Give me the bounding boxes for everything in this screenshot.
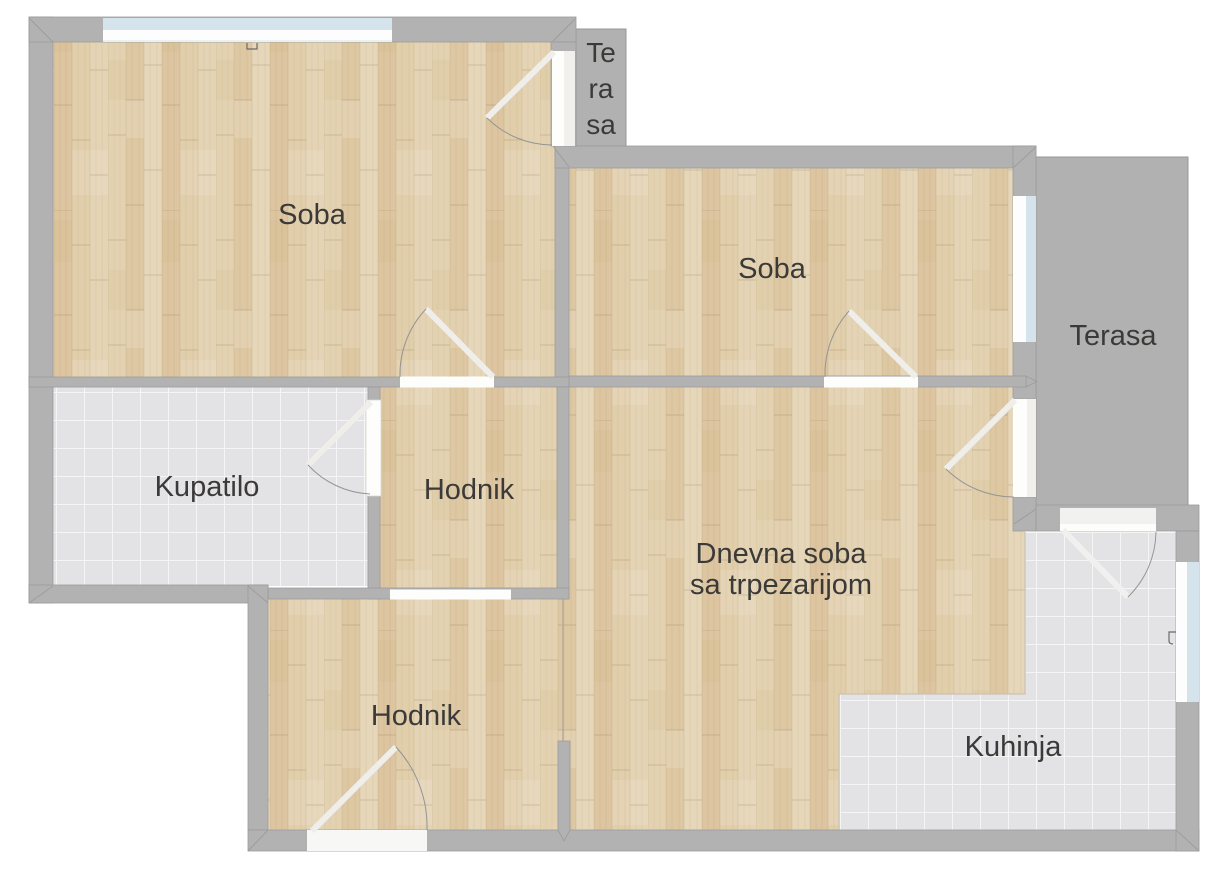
svg-text:Dnevna soba: Dnevna soba xyxy=(696,538,868,570)
svg-text:Kupatilo: Kupatilo xyxy=(155,471,260,503)
svg-text:sa: sa xyxy=(586,109,616,140)
svg-text:sa trpezarijom: sa trpezarijom xyxy=(690,569,872,601)
svg-text:Hodnik: Hodnik xyxy=(371,700,462,732)
svg-text:Soba: Soba xyxy=(278,199,347,231)
svg-text:Hodnik: Hodnik xyxy=(424,474,515,506)
svg-text:Terasa: Terasa xyxy=(1069,320,1157,352)
svg-text:Soba: Soba xyxy=(738,253,807,285)
svg-text:Kuhinja: Kuhinja xyxy=(965,731,1063,763)
svg-text:ra: ra xyxy=(589,73,614,104)
svg-text:Te: Te xyxy=(586,37,616,68)
